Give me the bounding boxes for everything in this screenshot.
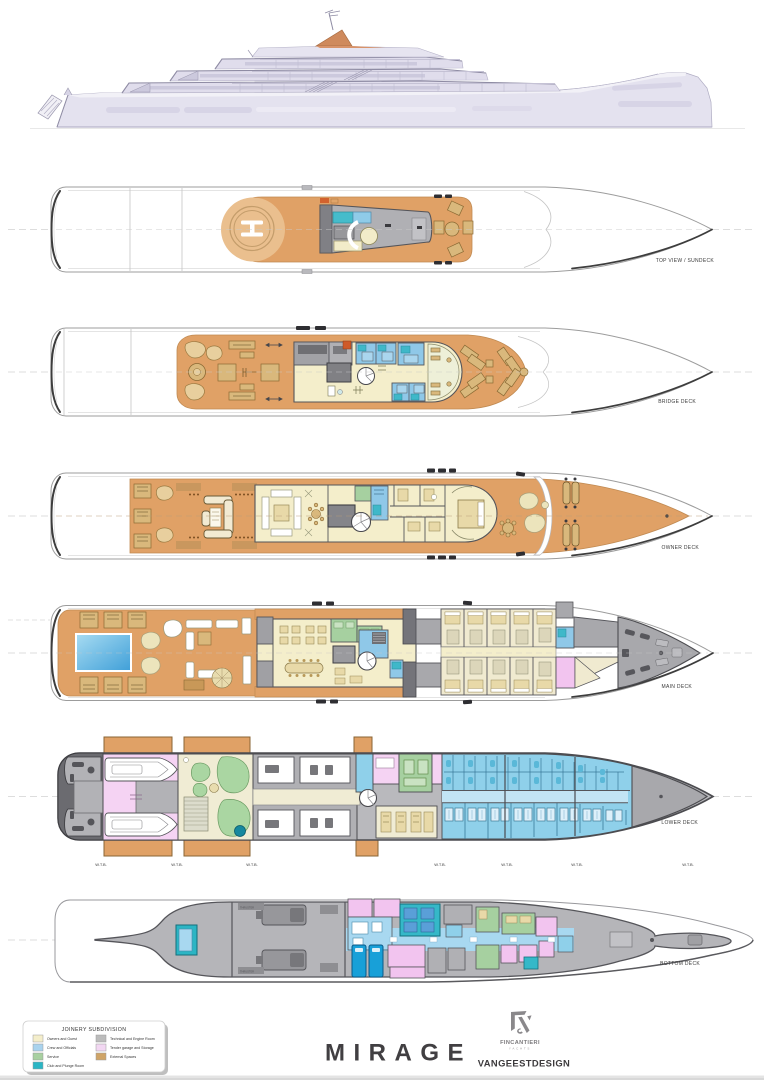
svg-text:Technical and Engine Room: Technical and Engine Room <box>110 1037 155 1041</box>
svg-text:W.T.B.: W.T.B. <box>171 862 183 867</box>
svg-text:W.T.B.: W.T.B. <box>95 862 107 867</box>
svg-text:W.T.B.: W.T.B. <box>682 862 694 867</box>
svg-text:THRUSTER: THRUSTER <box>240 906 254 910</box>
svg-text:FINCANTIERI: FINCANTIERI <box>500 1040 540 1046</box>
svg-text:W.T.B.: W.T.B. <box>501 862 513 867</box>
svg-text:MAIN DECK: MAIN DECK <box>662 684 693 690</box>
svg-text:External Spaces: External Spaces <box>110 1055 136 1059</box>
svg-text:Crew and Officials: Crew and Officials <box>47 1046 76 1050</box>
svg-text:W.T.B.: W.T.B. <box>246 862 258 867</box>
svg-text:Club and Plunge Room: Club and Plunge Room <box>47 1064 84 1068</box>
svg-text:W.T.B.: W.T.B. <box>434 862 446 867</box>
svg-text:OWNER DECK: OWNER DECK <box>662 545 700 551</box>
svg-text:MIRAGE: MIRAGE <box>325 1040 472 1067</box>
svg-text:LOWER DECK: LOWER DECK <box>661 820 698 826</box>
svg-text:Owners and Guest: Owners and Guest <box>47 1037 77 1041</box>
svg-text:Service: Service <box>47 1055 59 1059</box>
svg-text:TOP VIEW / SUNDECK: TOP VIEW / SUNDECK <box>656 258 715 264</box>
svg-text:Tender garage and Storage: Tender garage and Storage <box>110 1046 154 1050</box>
svg-text:BOTTOM DECK: BOTTOM DECK <box>660 961 700 967</box>
svg-text:BRIDGE DECK: BRIDGE DECK <box>658 399 696 405</box>
svg-text:W.T.B.: W.T.B. <box>571 862 583 867</box>
svg-text:THRUSTER: THRUSTER <box>240 970 254 974</box>
svg-text:JOINERY SUBDIVISION: JOINERY SUBDIVISION <box>62 1027 127 1033</box>
svg-text:VANGEESTDESIGN: VANGEESTDESIGN <box>478 1058 570 1069</box>
svg-text:YACHTS: YACHTS <box>509 1047 531 1051</box>
